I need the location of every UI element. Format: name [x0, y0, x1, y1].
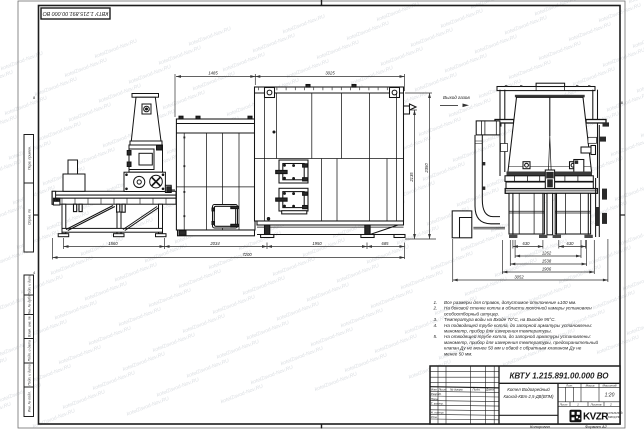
svg-text:5.: 5. — [434, 334, 438, 339]
svg-text:2034: 2034 — [209, 241, 220, 246]
svg-text:№ докум.: № докум. — [450, 387, 463, 391]
svg-text:Дата: Дата — [485, 387, 494, 391]
svg-text:Все размеры для справок, допус: Все размеры для справок, допустимое откл… — [444, 300, 576, 305]
svg-text:КВТУ 1.215.891.00.000 ВО: КВТУ 1.215.891.00.000 ВО — [42, 10, 109, 16]
svg-text:630: 630 — [567, 241, 575, 246]
svg-text:4.: 4. — [434, 323, 438, 328]
svg-text:Котел Водогрейный: Котел Водогрейный — [507, 387, 550, 392]
svg-text:3025: 3025 — [325, 71, 335, 76]
svg-text:3.: 3. — [434, 317, 438, 322]
svg-text:Копировал: Копировал — [530, 424, 551, 429]
svg-text:клапан Ду не менее 50 мм и обв: клапан Ду не менее 50 мм и обвод с обрат… — [444, 346, 582, 351]
svg-text:Утв.: Утв. — [431, 415, 438, 419]
svg-text:Лит.: Лит. — [565, 383, 573, 387]
svg-text:Инв. № дубл.: Инв. № дубл. — [28, 294, 32, 315]
svg-text:Перв. примен.: Перв. примен. — [28, 146, 32, 170]
svg-text:3052: 3052 — [514, 274, 524, 279]
svg-text:1538: 1538 — [542, 258, 552, 263]
svg-text:Формат А2: Формат А2 — [585, 424, 608, 429]
svg-text:Подп. и дата: Подп. и дата — [28, 340, 32, 361]
svg-text:Подп.: Подп. — [473, 387, 481, 391]
svg-text:Инв. № подл.: Инв. № подл. — [28, 391, 32, 412]
svg-text:ЗАВОД РФ: ЗАВОД РФ — [608, 416, 620, 419]
svg-text:КВТУ 1.215.891.00.000 ВО: КВТУ 1.215.891.00.000 ВО — [509, 371, 609, 380]
svg-text:Взам. инв. №: Взам. инв. № — [28, 316, 32, 337]
svg-text:Изм: Изм — [431, 387, 437, 391]
svg-text:Лист: Лист — [559, 403, 568, 407]
svg-text:KVZR: KVZR — [583, 412, 609, 423]
svg-text:Справ. №: Справ. № — [28, 209, 32, 225]
svg-text:Каскад-КВт-2,5-ДВ(ВПМ): Каскад-КВт-2,5-ДВ(ВПМ) — [503, 394, 554, 399]
svg-text:Подп. и дата: Подп. и дата — [28, 364, 32, 385]
svg-text:Пров.: Пров. — [431, 397, 439, 401]
svg-text:манометр, прибор для измерения: манометр, прибор для измерения температу… — [444, 339, 598, 345]
svg-text:2.: 2. — [433, 306, 438, 311]
svg-text:630: 630 — [523, 241, 531, 246]
svg-text:Т. контр.: Т. контр. — [431, 401, 444, 405]
svg-text:2350: 2350 — [424, 163, 429, 174]
svg-text:Н. контр.: Н. контр. — [431, 411, 445, 415]
svg-text:На подводящей трубе котла, до: На подводящей трубе котла, до запорной а… — [444, 322, 593, 328]
svg-text:1262: 1262 — [542, 250, 552, 255]
svg-text:Разраб.: Разраб. — [431, 392, 442, 396]
svg-text:Подп. и дата: Подп. и дата — [28, 274, 32, 295]
svg-text:1560: 1560 — [108, 241, 118, 246]
svg-text:КОТЕЛЬНЫЙ: КОТЕЛЬНЫЙ — [608, 412, 623, 415]
svg-text:Листов: Листов — [590, 403, 602, 407]
svg-text:1906: 1906 — [542, 266, 552, 271]
svg-text:манометр, прибор для измерения: манометр, прибор для измерения температу… — [444, 329, 552, 334]
svg-text:2135: 2135 — [409, 172, 414, 183]
svg-text:1.: 1. — [434, 300, 438, 305]
svg-text:На боковой стенке котла в обла: На боковой стенке котла в области топочн… — [444, 305, 592, 311]
svg-text:На отводящей трубе котла, до з: На отводящей трубе котла, до запорной ар… — [444, 333, 592, 339]
svg-text:7200: 7200 — [242, 252, 252, 257]
svg-text:особоотборный штуцер.: особоотборный штуцер. — [444, 310, 499, 316]
svg-text:Лист: Лист — [438, 387, 447, 391]
svg-text:менее 50 мм.: менее 50 мм. — [444, 351, 473, 356]
svg-text:1:20: 1:20 — [605, 393, 615, 399]
svg-text:1950: 1950 — [312, 241, 322, 246]
svg-text:Масштаб: Масштаб — [602, 383, 616, 387]
svg-text:1485: 1485 — [208, 71, 218, 76]
svg-text:685: 685 — [382, 241, 390, 246]
svg-text:2: 2 — [609, 403, 612, 407]
svg-text:Температура воды на Входе 70°С: Температура воды на Входе 70°С, на Выход… — [444, 317, 556, 322]
svg-text:Выход газов: Выход газов — [443, 95, 470, 100]
svg-text:Масса: Масса — [586, 383, 595, 387]
